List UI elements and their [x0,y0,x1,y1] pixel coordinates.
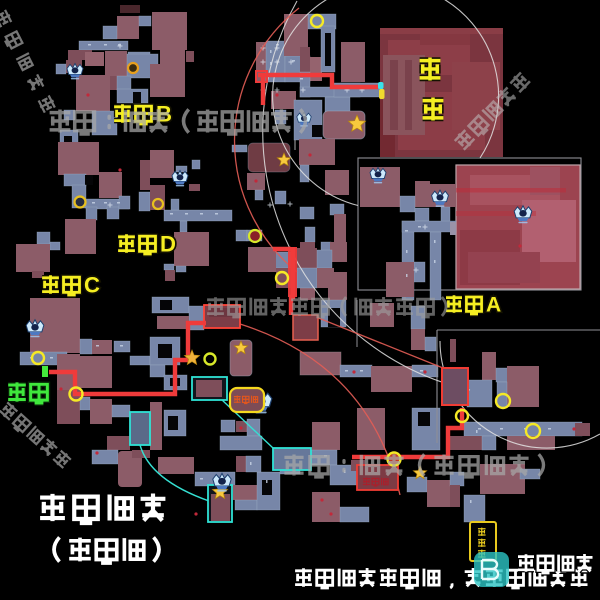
svg-text:C: C [84,273,100,298]
svg-text:A: A [486,294,501,317]
svg-text:D: D [160,232,176,257]
